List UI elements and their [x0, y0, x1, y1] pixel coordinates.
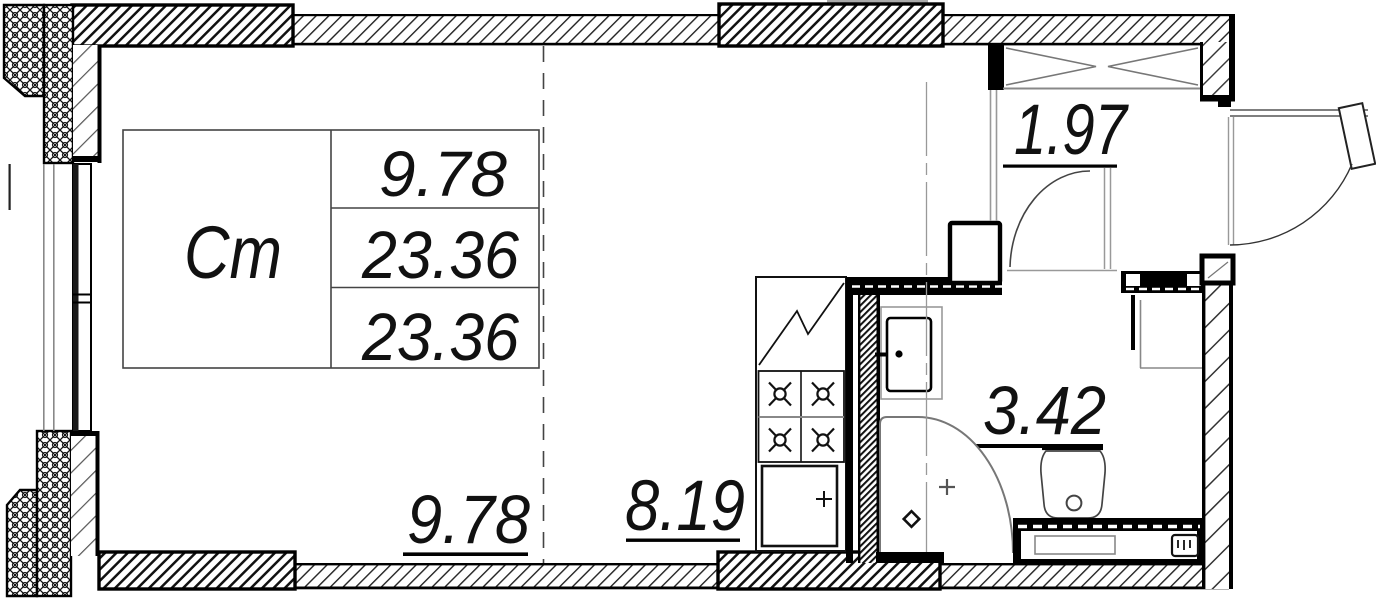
svg-text:3.42: 3.42 — [983, 372, 1106, 449]
svg-text:9.78: 9.78 — [407, 481, 530, 558]
svg-text:23.36: 23.36 — [361, 218, 520, 293]
svg-text:23.36: 23.36 — [361, 300, 520, 375]
svg-text:9.78: 9.78 — [379, 138, 507, 210]
svg-text:1.97: 1.97 — [1014, 91, 1129, 170]
svg-text:8.19: 8.19 — [625, 467, 745, 546]
svg-text:Ст: Ст — [184, 211, 282, 294]
